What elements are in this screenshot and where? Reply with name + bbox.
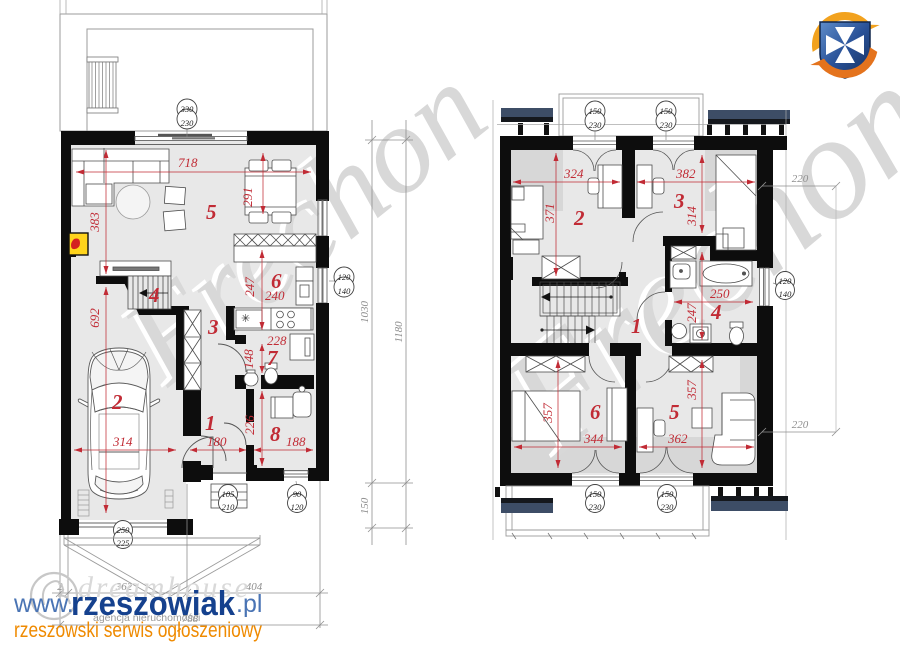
svg-text:3: 3 [673,189,685,213]
svg-text:180: 180 [207,434,227,449]
svg-text:382: 382 [675,166,696,181]
svg-text:90: 90 [293,489,302,499]
svg-text:291: 291 [240,187,255,207]
svg-text:230: 230 [661,502,675,512]
svg-text:225: 225 [117,538,130,548]
svg-text:www.: www. [13,590,74,618]
svg-text:230: 230 [589,502,603,512]
svg-text:230: 230 [181,118,195,128]
svg-text:357: 357 [540,403,555,424]
svg-text:150: 150 [359,497,371,514]
svg-text:250: 250 [710,286,730,301]
svg-text:314: 314 [684,206,699,227]
svg-text:5: 5 [669,400,680,424]
svg-text:150: 150 [589,106,603,116]
svg-text:362: 362 [667,431,688,446]
svg-text:2: 2 [573,206,585,230]
svg-text:344: 344 [583,431,604,446]
svg-text:8: 8 [270,422,281,446]
svg-text:150: 150 [660,106,674,116]
svg-text:✳: ✳ [241,313,250,325]
svg-text:1030: 1030 [359,301,371,324]
svg-text:6: 6 [271,269,282,293]
svg-text:120: 120 [779,276,793,286]
svg-text:4: 4 [148,283,160,307]
svg-text:105: 105 [222,489,235,499]
svg-text:rzeszowski serwis ogłoszeniowy: rzeszowski serwis ogłoszeniowy [14,618,262,642]
svg-text:120: 120 [291,502,305,512]
svg-text:247: 247 [242,277,257,297]
svg-text:4: 4 [710,300,722,324]
svg-text:230: 230 [589,120,603,130]
svg-text:692: 692 [87,308,102,328]
svg-text:3: 3 [207,315,219,339]
svg-text:383: 383 [87,212,102,233]
svg-text:718: 718 [178,155,198,170]
svg-text:6: 6 [590,400,601,424]
svg-text:150: 150 [589,489,603,499]
svg-text:140: 140 [338,286,352,296]
svg-text:357: 357 [684,380,699,401]
svg-text:330: 330 [180,104,195,114]
svg-text:150: 150 [661,489,675,499]
svg-text:1: 1 [631,314,642,338]
svg-text:230: 230 [660,120,674,130]
svg-text:226: 226 [242,415,257,435]
svg-text:2: 2 [111,390,123,414]
svg-text:5: 5 [206,200,217,224]
svg-text:371: 371 [542,203,557,224]
svg-text:188: 188 [286,434,306,449]
svg-text:140: 140 [779,289,793,299]
svg-text:220: 220 [792,419,809,431]
svg-text:250: 250 [117,525,131,535]
svg-text:1: 1 [205,411,216,435]
svg-text:324: 324 [563,166,584,181]
svg-text:7: 7 [267,346,279,370]
svg-text:148: 148 [241,349,256,369]
svg-text:120: 120 [338,272,352,282]
svg-text:220: 220 [792,173,809,185]
svg-text:.pl: .pl [236,590,262,618]
svg-text:314: 314 [112,434,133,449]
svg-text:210: 210 [222,502,236,512]
svg-text:1180: 1180 [393,321,405,343]
svg-text:247: 247 [684,303,699,323]
